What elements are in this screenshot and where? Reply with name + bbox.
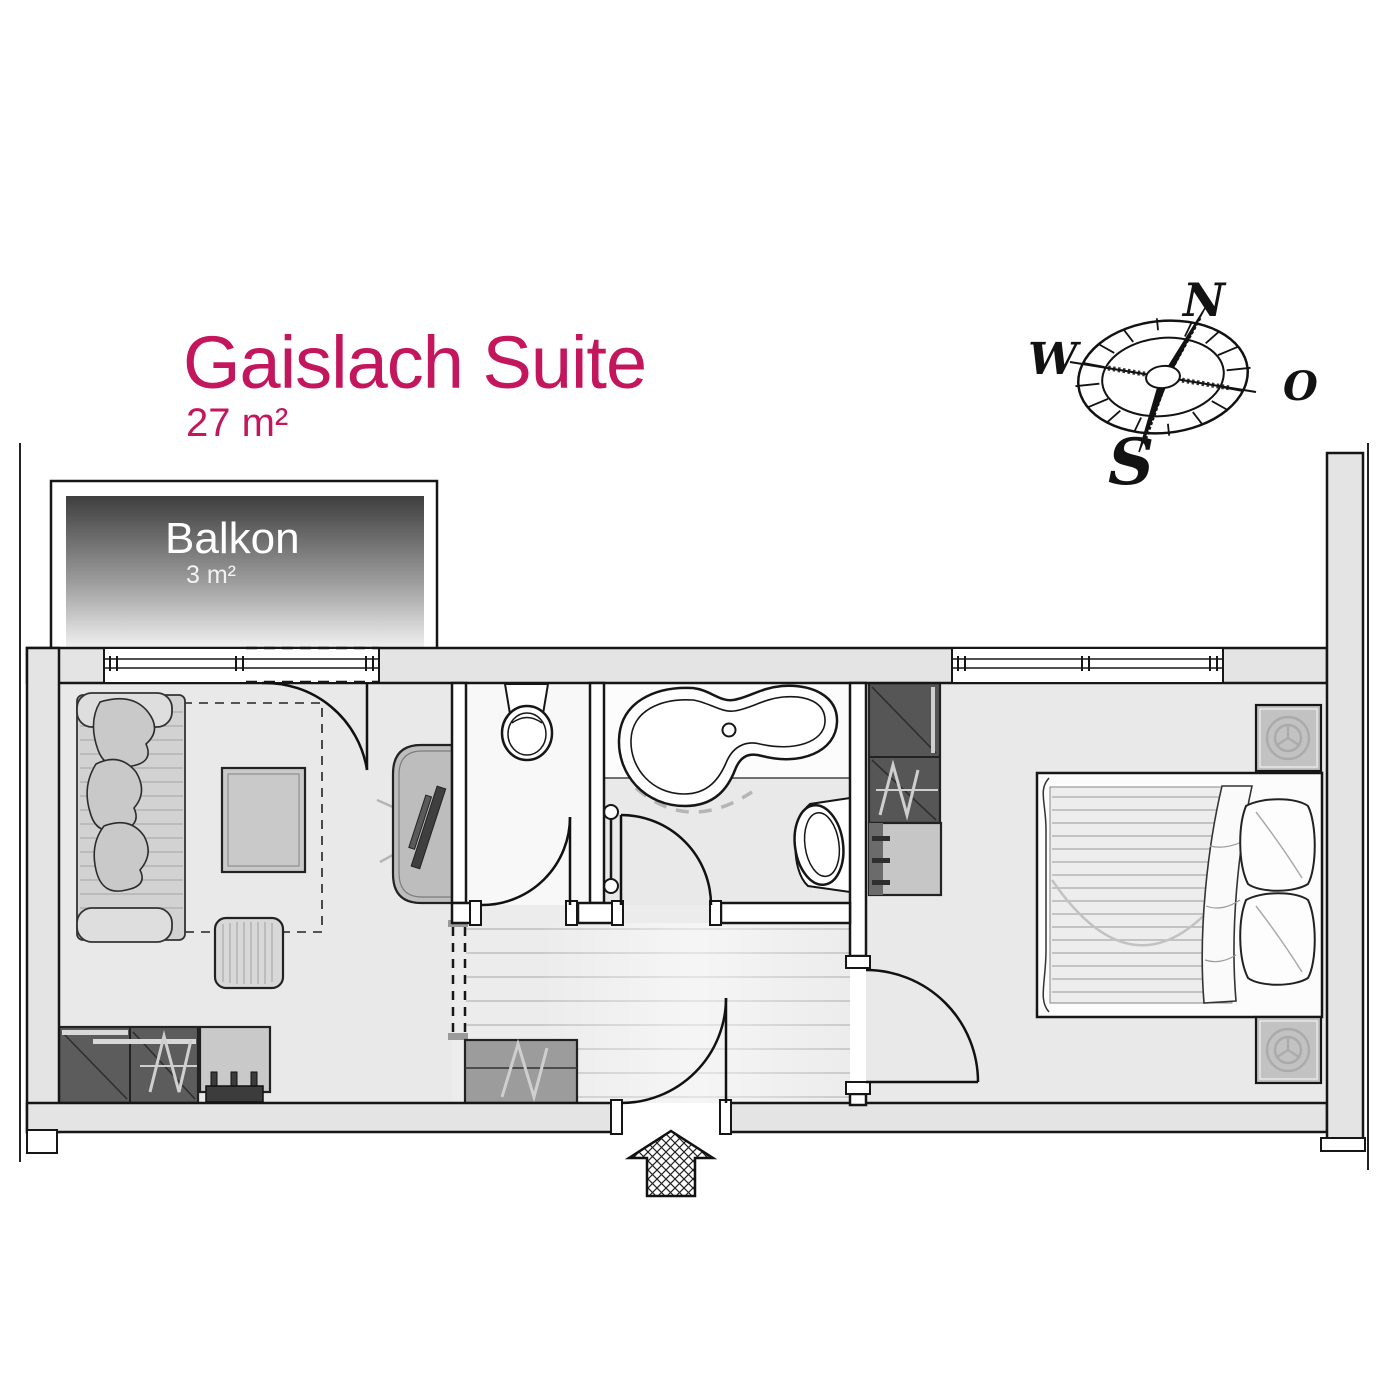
wardrobe-shelf-line [62,1030,128,1035]
nightstand-top [1256,705,1321,771]
title-block: Gaislach Suite 27 m² [183,321,646,445]
page-title: Gaislach Suite [183,321,646,404]
hall-cabinet [465,1040,577,1103]
page-title-area: 27 m² [186,401,288,445]
compass-west-label: W [1028,334,1082,385]
luggage-bench [200,1027,270,1102]
minibar-unit [869,823,941,895]
living-wardrobe [58,1027,198,1103]
compass-rose: N W O S [1028,273,1318,500]
bottom-wall-left [27,1103,618,1132]
bath-bottom-wall [721,903,850,923]
sofa [77,693,185,942]
coffee-table [222,768,305,872]
bedroom-wardrobe [869,683,940,823]
entrance-arrow [629,1131,713,1196]
compass-south-label: S [1108,425,1154,500]
right-wall-column [1327,453,1363,1148]
compass-north-label: N [1181,273,1227,327]
bath-bedroom-wall [850,683,866,956]
wc-bath-wall [590,683,604,903]
balcony-area-label: 3 m² [186,561,236,589]
nightstand-bottom [1256,1017,1321,1083]
balcony: Balkon 3 m² [51,481,437,651]
left-wall-foot [27,1130,57,1153]
floorplan-page: Balkon 3 m² [0,0,1400,1400]
bedroom-window [952,648,1223,683]
balcony-label: Balkon [165,514,300,563]
sofa-armrest-bottom [77,908,172,942]
living-wc-wall [452,683,466,903]
right-wall-foot [1321,1138,1365,1151]
wardrobe-shelf-line [931,687,935,753]
wardrobe-shelf-line [93,1039,196,1044]
compass-east-label: O [1283,363,1318,410]
wc-bath-bottom-wall [578,903,615,923]
left-wall [27,648,59,1132]
floorplan-drawing: Balkon 3 m² [0,0,1400,1400]
ottoman [215,918,283,988]
living-window [104,648,379,683]
toilet [502,684,552,760]
bottom-wall-right [723,1103,1327,1132]
bedroom-wall-stub [850,1094,866,1105]
bed [1037,773,1322,1017]
